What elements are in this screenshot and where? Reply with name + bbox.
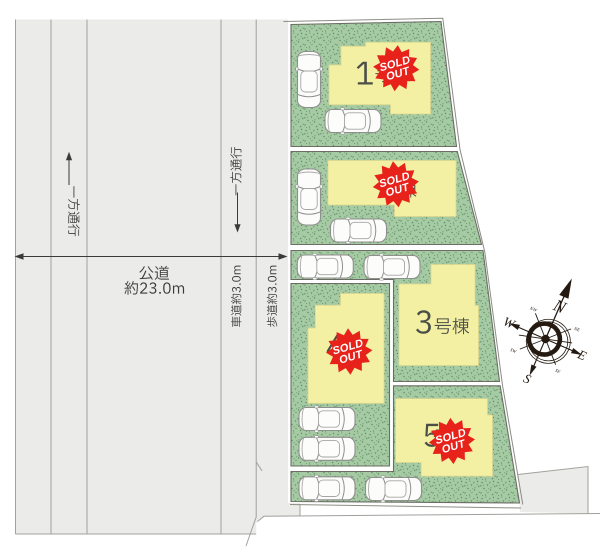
svg-text:NE: NE (572, 325, 580, 332)
svg-text:E: E (575, 346, 589, 363)
svg-text:SW: SW (509, 347, 518, 354)
svg-text:W: W (501, 314, 518, 333)
svg-text:SE: SE (554, 368, 561, 375)
svg-text:N: N (550, 295, 570, 318)
svg-text:NW: NW (528, 305, 538, 313)
svg-text:S: S (521, 370, 533, 387)
